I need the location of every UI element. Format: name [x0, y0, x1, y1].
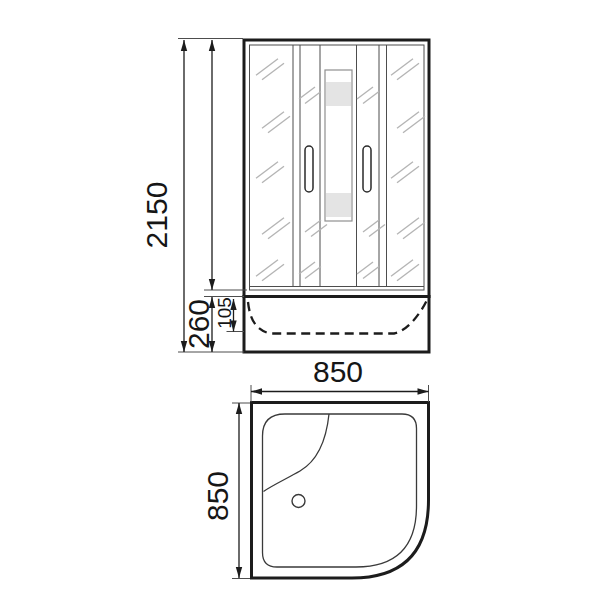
dim-label-tray-height: 260 — [182, 299, 215, 349]
arrowhead — [251, 388, 262, 394]
drain-hole — [292, 495, 305, 508]
shower-tray-front — [244, 297, 429, 353]
dim-label-tray-inner-depth: 105 — [214, 297, 235, 329]
arrowhead — [418, 388, 429, 394]
dim-label-tray-width: 850 — [313, 355, 363, 388]
arrowhead — [236, 567, 242, 578]
technical-drawing-canvas: 2150 260 105 850 850 — [0, 0, 600, 600]
dimension-tray-width — [251, 388, 429, 394]
front-view — [244, 40, 429, 352]
back-panel-band-bottom — [326, 193, 351, 217]
arrowhead — [209, 40, 215, 51]
arrowhead — [181, 40, 187, 51]
dim-label-total-height: 2150 — [140, 182, 173, 249]
top-view — [252, 403, 429, 579]
dimension-glass-height — [209, 40, 215, 290]
shower-cabin-drawing: 2150 260 105 850 850 — [0, 0, 600, 600]
door-handle-right — [363, 146, 371, 192]
arrowhead — [209, 279, 215, 290]
dimension-tray-depth — [236, 403, 242, 578]
door-handle-left — [305, 146, 313, 192]
arrowhead — [236, 403, 242, 414]
dim-label-tray-depth: 850 — [201, 471, 234, 521]
back-panel-band-top — [326, 82, 351, 106]
